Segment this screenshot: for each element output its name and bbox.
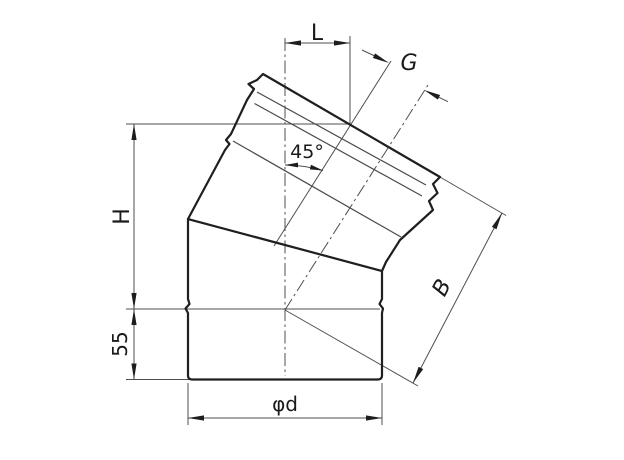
arrow-H-top (131, 124, 136, 140)
dimension-labels: LG45°H55Bφd (108, 21, 457, 416)
technical-drawing-page: LG45°H55Bφd (0, 0, 624, 460)
arrow-B-lower (413, 367, 423, 383)
arrow-B-upper (492, 213, 502, 229)
arrow-L-right (334, 40, 350, 45)
dim-label-55: 55 (108, 331, 132, 356)
thin-line-9 (413, 213, 502, 383)
thin-line-11 (285, 310, 418, 386)
dim-label-diameter: φd (272, 392, 298, 416)
technical-drawing: LG45°H55Bφd (0, 0, 624, 460)
dim-label-H: H (110, 208, 135, 225)
arrow-angle-right (310, 165, 323, 171)
arrow-angle-left (285, 163, 298, 168)
pipe-outline (186, 74, 441, 380)
pipe-body-outline (186, 74, 441, 380)
dim-label-B: B (428, 275, 457, 300)
arrow-55-bottom (131, 364, 136, 380)
arrow-L-left (285, 40, 301, 45)
angle-label-45: 45° (290, 141, 324, 163)
extension-lines (126, 36, 506, 425)
seam-line-0 (257, 92, 426, 185)
thin-line-10 (440, 177, 506, 216)
arrow-G-left (373, 53, 389, 63)
centerlines (285, 38, 428, 376)
dim-label-G: G (400, 51, 417, 76)
arrow-diameter-right (366, 415, 382, 420)
arrow-G-right (424, 90, 440, 100)
arrow-55-top (131, 309, 136, 325)
arrow-H-bottom (131, 293, 136, 309)
arrow-diameter-left (188, 415, 204, 420)
dim-label-L: L (311, 21, 324, 46)
thin-line-13 (439, 97, 448, 101)
